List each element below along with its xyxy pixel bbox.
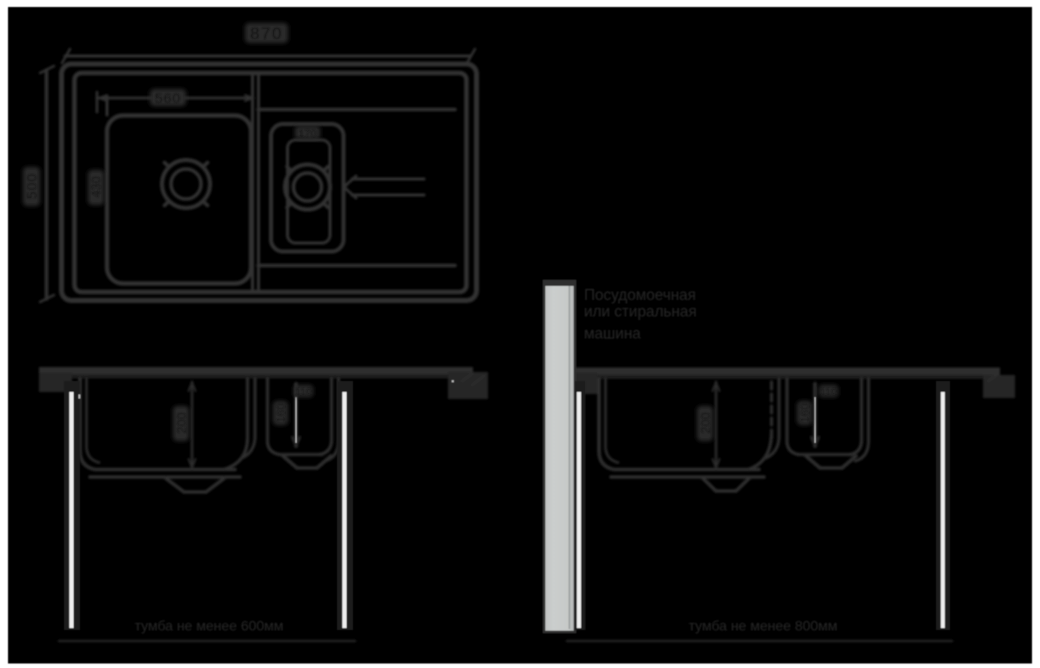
- svg-text:Посудомоечная: Посудомоечная: [584, 287, 696, 304]
- svg-text:870: 870: [250, 24, 283, 43]
- svg-text:160: 160: [800, 403, 812, 422]
- svg-text:или стиральная: или стиральная: [584, 304, 697, 321]
- svg-text:110: 110: [295, 386, 312, 398]
- svg-text:тумба не менее 800мм: тумба не менее 800мм: [689, 618, 838, 634]
- svg-text:430: 430: [90, 177, 104, 198]
- svg-text:560: 560: [155, 90, 181, 106]
- svg-text:машина: машина: [584, 326, 641, 343]
- svg-text:160: 160: [276, 403, 288, 422]
- svg-text:тумба не менее 600мм: тумба не менее 600мм: [135, 618, 284, 634]
- svg-text:200: 200: [699, 413, 713, 434]
- svg-text:170: 170: [298, 128, 316, 140]
- svg-text:200: 200: [175, 413, 189, 434]
- svg-text:500: 500: [24, 173, 40, 199]
- svg-text:110: 110: [820, 386, 837, 398]
